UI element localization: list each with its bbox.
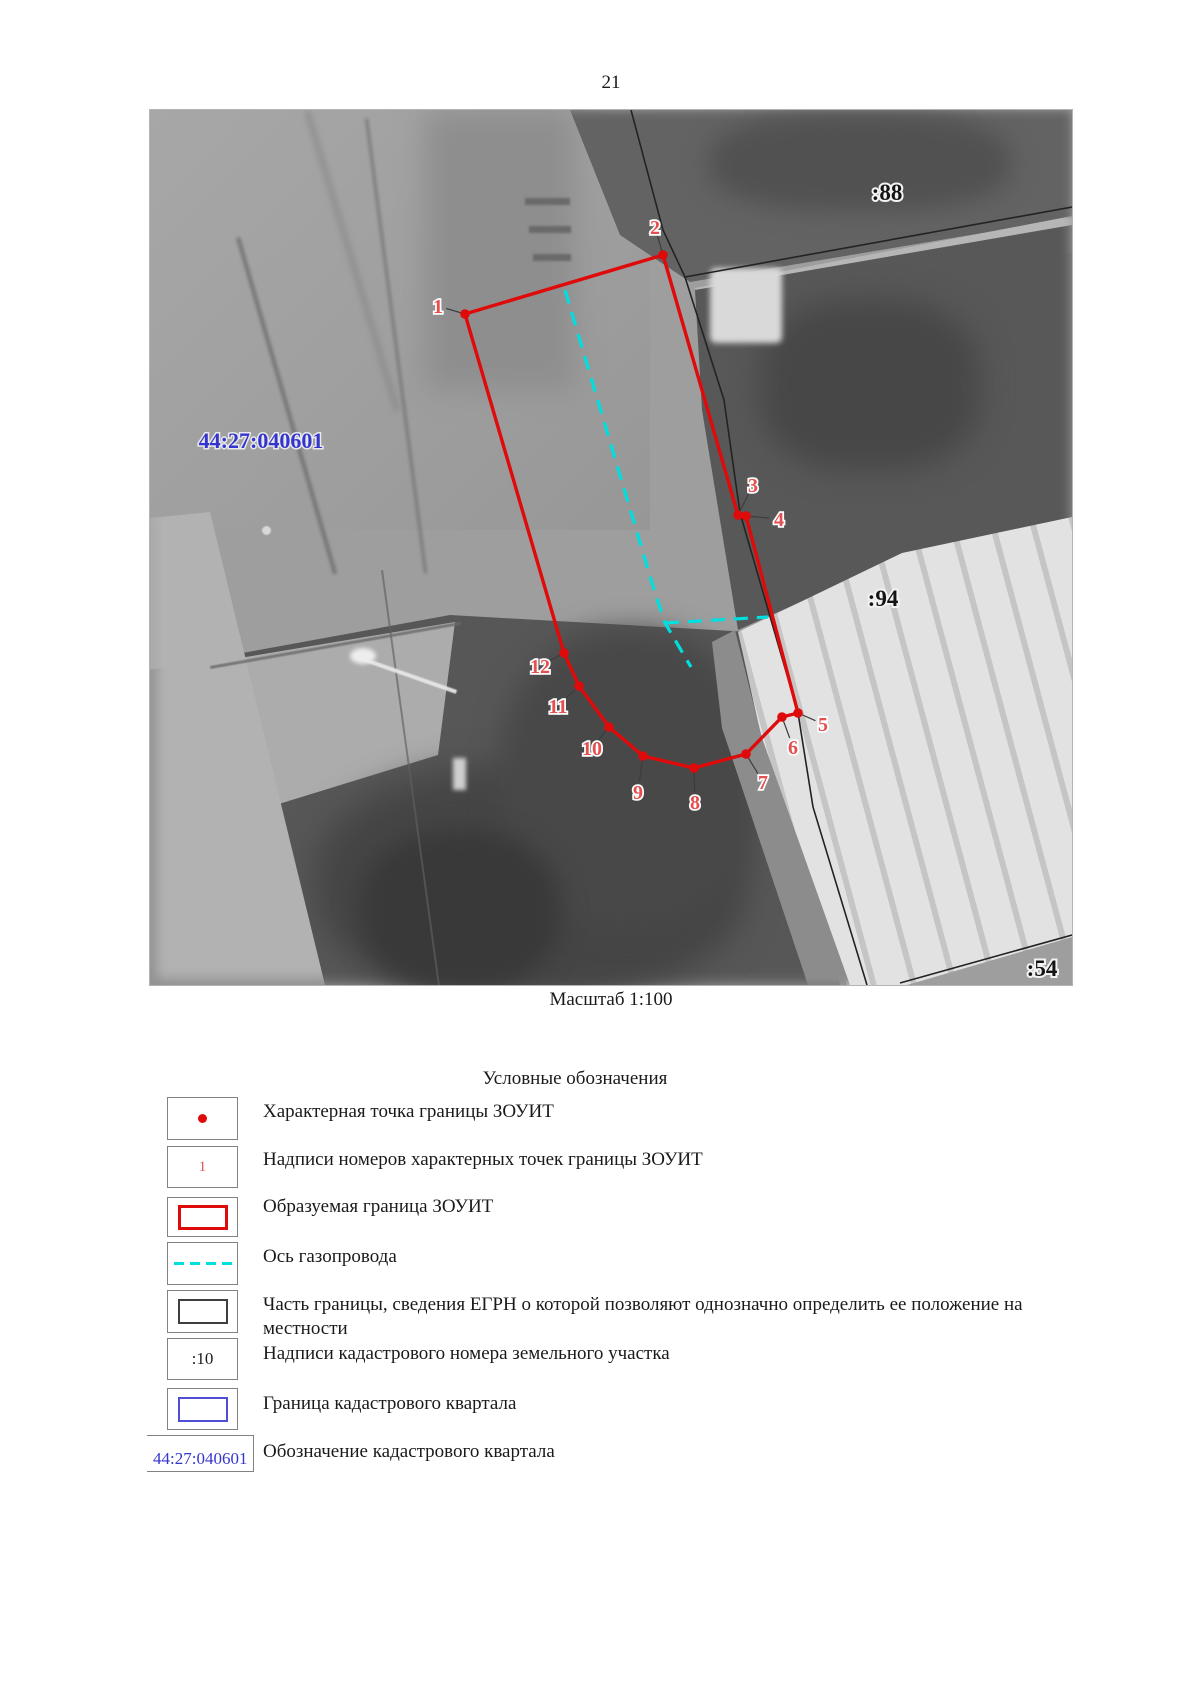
legend-item-label: Надписи кадастрового номера земельного у… bbox=[263, 1342, 1078, 1366]
zouit-boundary-icon bbox=[178, 1205, 228, 1230]
boundary-point bbox=[689, 763, 699, 773]
parcel-number-label: :54 bbox=[1027, 956, 1058, 981]
document-page: 21 123456789101112:88:94:5444:27:040601 bbox=[0, 0, 1200, 1697]
point-number-label: 3 bbox=[748, 475, 758, 497]
legend-symbol-zouit-boundary bbox=[167, 1197, 238, 1237]
scheme-map: 123456789101112:88:94:5444:27:040601 bbox=[150, 110, 1072, 985]
point-number-label: 5 bbox=[818, 714, 828, 736]
boundary-point bbox=[559, 648, 569, 658]
legend-symbol-pipeline-axis bbox=[167, 1242, 238, 1285]
boundary-point-icon bbox=[198, 1114, 207, 1123]
legend-symbol-point-number: 1 bbox=[167, 1146, 238, 1188]
point-number-label: 9 bbox=[633, 782, 643, 804]
point-number-label: 7 bbox=[758, 772, 768, 794]
boundary-point bbox=[777, 712, 787, 722]
legend-item-label: Характерная точка границы ЗОУИТ bbox=[263, 1100, 1078, 1124]
legend-symbol-boundary-point bbox=[167, 1097, 238, 1140]
legend-item-label: Часть границы, сведения ЕГРН о которой п… bbox=[263, 1293, 1078, 1341]
boundary-point bbox=[741, 749, 751, 759]
point-number-label: 6 bbox=[788, 737, 798, 759]
boundary-point bbox=[793, 708, 803, 718]
legend-symbol-egrn-boundary bbox=[167, 1290, 238, 1333]
boundary-point bbox=[638, 751, 648, 761]
legend-title: Условные обозначения bbox=[150, 1068, 1000, 1090]
point-number-label: 2 bbox=[650, 217, 660, 239]
egrn-boundary-line bbox=[685, 207, 1072, 277]
pipeline-axis-icon bbox=[174, 1262, 232, 1266]
boundary-point bbox=[658, 250, 668, 260]
legend-symbol-parcel-number: :10 bbox=[167, 1338, 238, 1380]
point-number-label: 11 bbox=[549, 696, 568, 718]
parcel-number-label: :94 bbox=[868, 586, 899, 611]
map-scale-label: Масштаб 1:100 bbox=[150, 989, 1072, 1011]
boundary-point bbox=[741, 511, 751, 521]
page-number: 21 bbox=[150, 72, 1072, 94]
cadastral-quarter-label: 44:27:040601 bbox=[199, 428, 324, 453]
quarter-number-sample: 44:27:040601 bbox=[153, 1449, 247, 1469]
legend-item-label: Ось газопровода bbox=[263, 1245, 1078, 1269]
legend-symbol-quarter-boundary bbox=[167, 1388, 238, 1430]
legend-item-label: Образуемая граница ЗОУИТ bbox=[263, 1195, 1078, 1219]
boundary-point bbox=[574, 681, 584, 691]
legend-item-label: Надписи номеров характерных точек границ… bbox=[263, 1148, 1078, 1172]
legend-item-label: Обозначение кадастрового квартала bbox=[263, 1440, 1078, 1464]
point-number-label: 12 bbox=[530, 656, 550, 678]
egrn-boundary-line bbox=[631, 110, 867, 985]
point-number-label: 1 bbox=[433, 296, 443, 318]
point-number-label: 10 bbox=[582, 738, 602, 760]
quarter-boundary-icon bbox=[178, 1397, 228, 1422]
gas-pipeline-axis bbox=[665, 617, 768, 623]
point-number-label: 8 bbox=[690, 792, 700, 814]
gas-pipeline-axis bbox=[565, 290, 691, 667]
legend-item-label: Граница кадастрового квартала bbox=[263, 1392, 1078, 1416]
parcel-number-label: :88 bbox=[872, 180, 903, 205]
point-number-sample: 1 bbox=[199, 1159, 207, 1176]
map-vector-overlay: 123456789101112:88:94:5444:27:040601 bbox=[150, 110, 1072, 985]
point-number-label: 4 bbox=[774, 509, 784, 531]
parcel-number-sample: :10 bbox=[192, 1349, 214, 1369]
boundary-point bbox=[460, 309, 470, 319]
boundary-point bbox=[604, 722, 614, 732]
legend-symbol-quarter-number: 44:27:040601 bbox=[147, 1435, 254, 1472]
egrn-boundary-icon bbox=[178, 1299, 228, 1324]
